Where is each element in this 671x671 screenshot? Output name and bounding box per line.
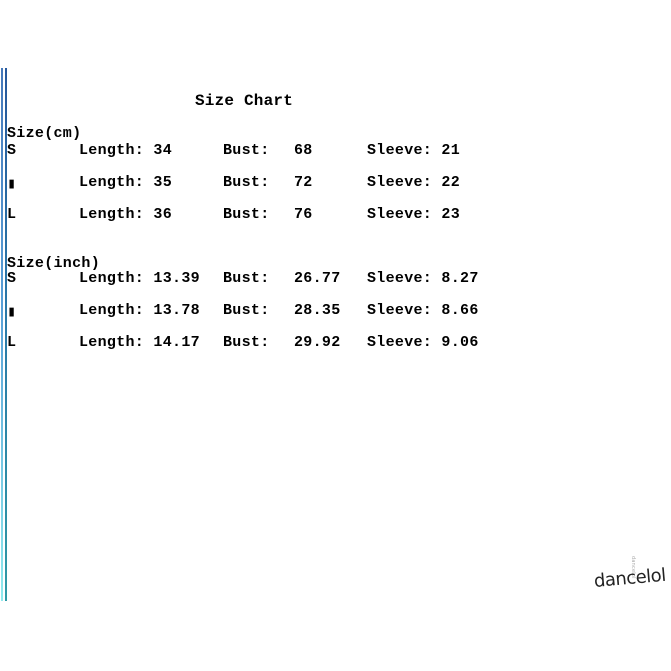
bust-label: Bust: xyxy=(223,334,270,351)
sleeve-value: Sleeve: 9.06 xyxy=(367,334,479,351)
length-value: Length: 13.78 xyxy=(79,302,200,319)
bust-value: 76 xyxy=(294,206,313,223)
sleeve-value: Sleeve: 8.27 xyxy=(367,270,479,287)
sleeve-value: Sleeve: 21 xyxy=(367,142,460,159)
length-value: Length: 14.17 xyxy=(79,334,200,351)
page-title: Size Chart xyxy=(195,92,293,110)
bust-label: Bust: xyxy=(223,142,270,159)
size-label: S xyxy=(7,142,16,159)
size-label: ▮ xyxy=(7,174,16,193)
bust-value: 26.77 xyxy=(294,270,341,287)
bust-value: 68 xyxy=(294,142,313,159)
bust-label: Bust: xyxy=(223,302,270,319)
size-label: L xyxy=(7,206,16,223)
bust-value: 72 xyxy=(294,174,313,191)
length-value: Length: 34 xyxy=(79,142,172,159)
sleeve-value: Sleeve: 23 xyxy=(367,206,460,223)
bust-label: Bust: xyxy=(223,174,270,191)
length-value: Length: 36 xyxy=(79,206,172,223)
size-row-cm-l: L Length: 36 Bust: 76 Sleeve: 23 xyxy=(0,206,671,224)
watermark-text: dancelol xyxy=(593,565,666,592)
size-chart-image: { "title": "Size Chart", "sections": [ {… xyxy=(0,0,671,671)
bust-value: 28.35 xyxy=(294,302,341,319)
bust-label: Bust: xyxy=(223,206,270,223)
sleeve-value: Sleeve: 8.66 xyxy=(367,302,479,319)
size-row-inch-l: L Length: 14.17 Bust: 29.92 Sleeve: 9.06 xyxy=(0,334,671,352)
length-value: Length: 35 xyxy=(79,174,172,191)
bust-label: Bust: xyxy=(223,270,270,287)
size-label: ▮ xyxy=(7,302,16,321)
section-heading-cm: Size(cm) xyxy=(7,125,81,142)
sleeve-value: Sleeve: 22 xyxy=(367,174,460,191)
size-row-inch-s: S Length: 13.39 Bust: 26.77 Sleeve: 8.27 xyxy=(0,270,671,288)
size-label: S xyxy=(7,270,16,287)
size-label: L xyxy=(7,334,16,351)
length-value: Length: 13.39 xyxy=(79,270,200,287)
size-row-cm-m: ▮ Length: 35 Bust: 72 Sleeve: 22 xyxy=(0,174,671,192)
size-row-inch-m: ▮ Length: 13.78 Bust: 28.35 Sleeve: 8.66 xyxy=(0,302,671,320)
bust-value: 29.92 xyxy=(294,334,341,351)
size-row-cm-s: S Length: 34 Bust: 68 Sleeve: 21 xyxy=(0,142,671,160)
